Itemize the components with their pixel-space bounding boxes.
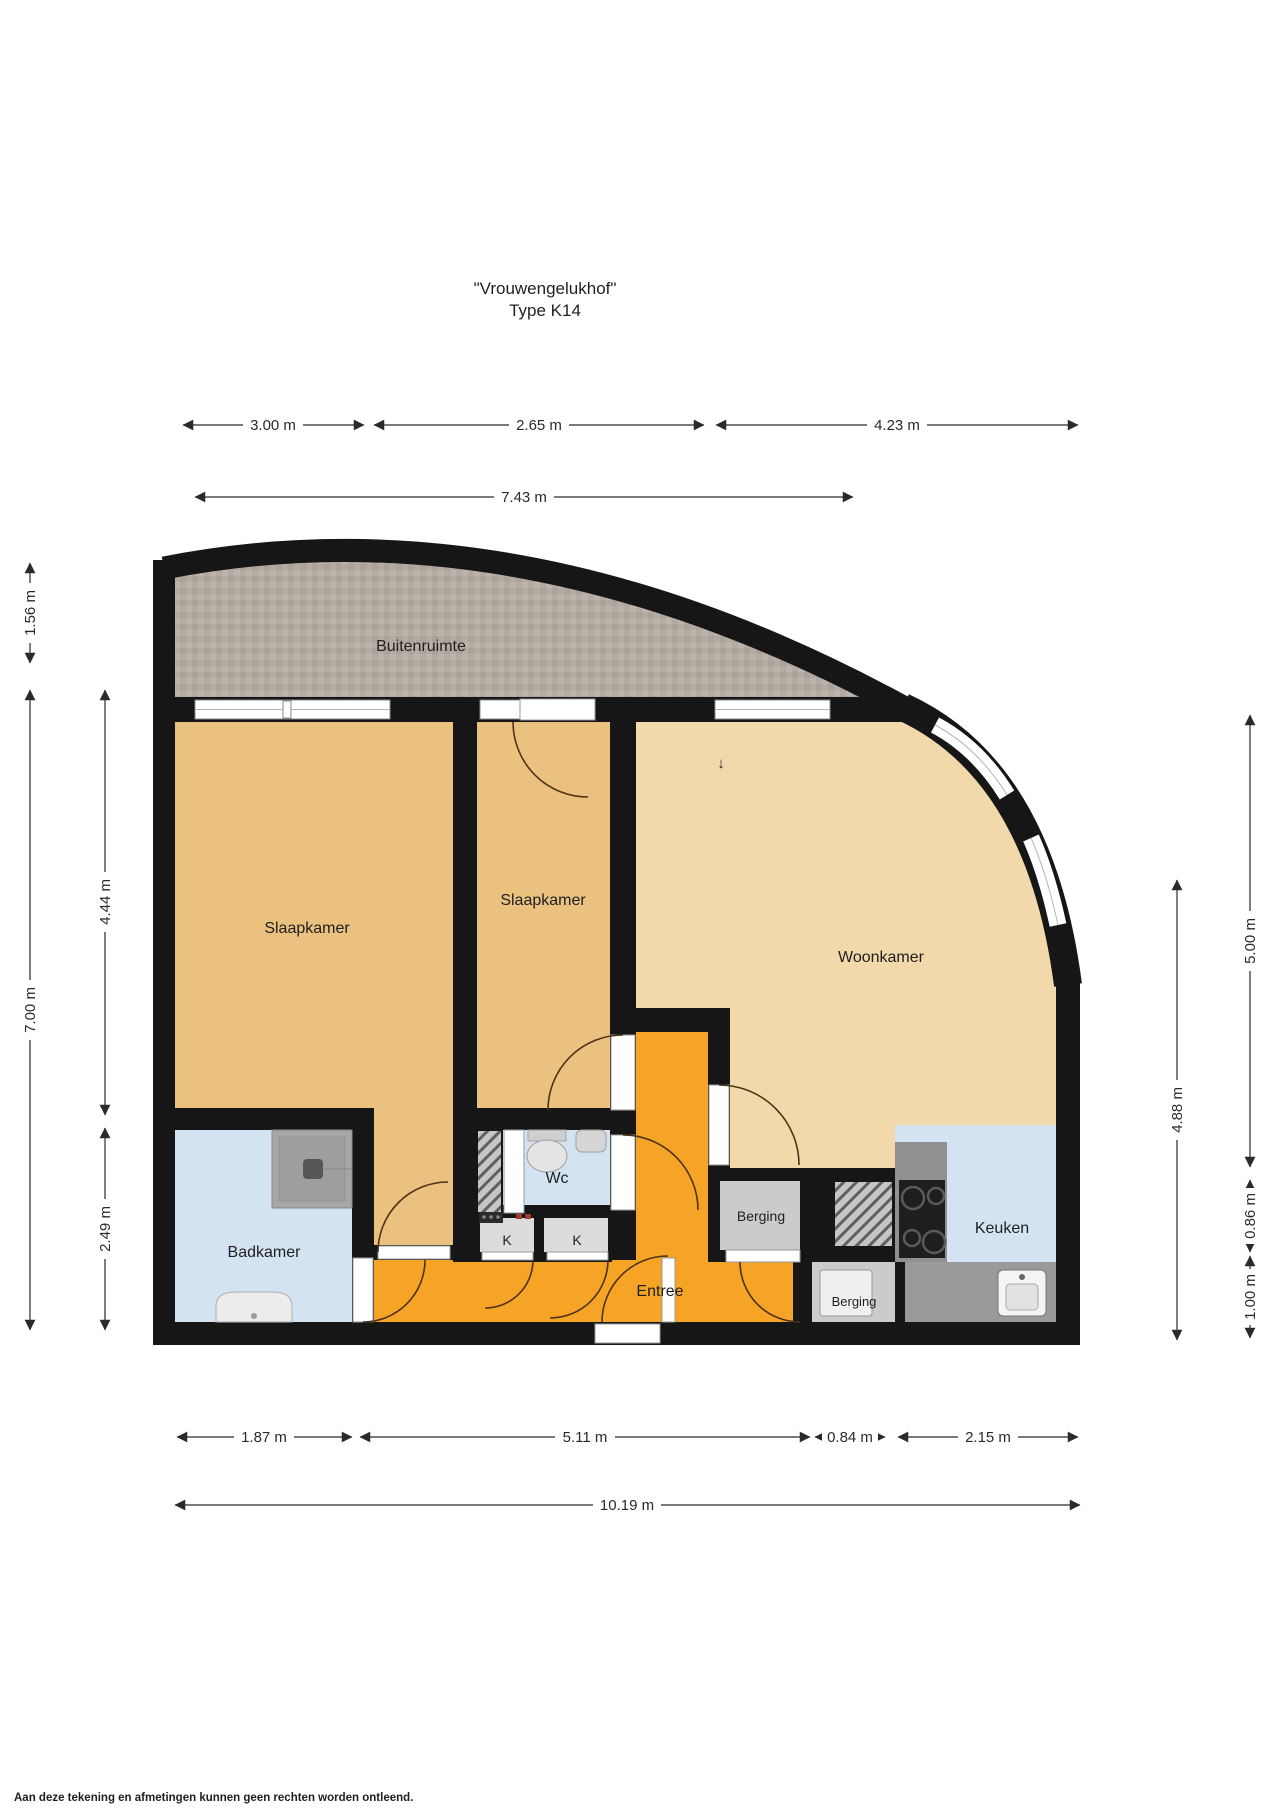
wall-hall-top <box>636 1008 730 1032</box>
door-opening <box>611 1135 635 1210</box>
disclaimer-text: Aan deze tekening en afmetingen kunnen g… <box>14 1792 413 1804</box>
toilet-icon <box>527 1140 567 1172</box>
window <box>480 700 520 719</box>
dim-label: 0.84 m <box>827 1429 873 1446</box>
dim-left-balcony: 1.56 m <box>21 563 39 663</box>
dim-label: 2.15 m <box>965 1429 1011 1446</box>
dim-label: 5.11 m <box>563 1429 608 1446</box>
kitchen-sink-basin <box>1006 1284 1038 1310</box>
appliance-dot <box>496 1215 500 1219</box>
dim-top-total: 7.43 m <box>195 488 853 506</box>
dim-label: 4.23 m <box>874 417 920 434</box>
floorplan-canvas: "Vrouwengelukhof" Type K14 <box>0 0 1280 1811</box>
shaft-panel <box>504 1130 524 1213</box>
dim-label: 2.49 m <box>97 1206 114 1252</box>
wall-bedrooms-divider <box>453 722 477 1260</box>
label-woonkamer: Woonkamer <box>838 949 925 966</box>
faucet-icon <box>1019 1274 1025 1280</box>
dim-bottom-total: 10.19 m <box>175 1496 1080 1514</box>
label-slaapkamer-midden: Slaapkamer <box>500 892 586 909</box>
label-kast-2: K <box>572 1232 582 1248</box>
dim-label: 7.00 m <box>22 987 39 1033</box>
dim-right-storage: 0.86 m <box>1241 1180 1259 1252</box>
wall-bedroom-living <box>610 722 636 1032</box>
dim-right-bottom: 1.00 m <box>1241 1256 1259 1338</box>
shower-drain-icon <box>303 1159 323 1179</box>
door-opening <box>378 1246 450 1259</box>
dim-left-bathroom: 2.49 m <box>96 1128 114 1330</box>
label-berging-1: Berging <box>737 1208 785 1224</box>
door-opening <box>709 1085 729 1165</box>
washer-icon <box>820 1270 872 1316</box>
wc-sink-icon <box>576 1130 606 1152</box>
label-buitenruimte: Buitenruimte <box>376 638 466 655</box>
label-berging-2: Berging <box>832 1294 877 1309</box>
toilet-tank-icon <box>528 1130 566 1141</box>
title-block: "Vrouwengelukhof" Type K14 <box>474 279 617 320</box>
window-mullion <box>283 701 291 718</box>
dim-left-bedroom: 4.44 m <box>96 690 114 1115</box>
label-badkamer: Badkamer <box>228 1244 302 1261</box>
dim-bottom-1: 1.87 m <box>177 1428 352 1446</box>
dim-label: 0.86 m <box>1242 1193 1259 1239</box>
bedroom-middle-floor <box>477 722 610 1113</box>
label-slaapkamer-links: Slaapkamer <box>264 920 350 937</box>
front-door-opening <box>595 1324 660 1343</box>
tap-symbol-icon <box>516 1214 522 1219</box>
shaft-hatch-1 <box>477 1130 502 1213</box>
wall-right <box>1056 975 1080 1345</box>
dim-label: 4.44 m <box>97 879 114 925</box>
dim-label: 10.19 m <box>600 1497 654 1514</box>
dim-bottom-3: 0.84 m <box>815 1428 885 1446</box>
label-wc: Wc <box>545 1170 568 1187</box>
dim-label: 1.56 m <box>22 590 39 636</box>
wall-bathroom-top <box>153 1108 374 1130</box>
door-opening <box>611 1035 635 1110</box>
appliance-dot <box>489 1215 493 1219</box>
dim-right-inner: 4.88 m <box>1168 880 1186 1340</box>
dim-label: 1.00 m <box>1242 1274 1259 1320</box>
dim-label: 7.43 m <box>501 489 547 506</box>
dim-label: 3.00 m <box>250 417 296 434</box>
closet-door <box>482 1252 533 1260</box>
dim-label: 5.00 m <box>1242 918 1259 964</box>
dim-label: 2.65 m <box>516 417 562 434</box>
wall-storage2-left <box>793 1262 812 1322</box>
dim-label: 1.87 m <box>241 1429 287 1446</box>
bathroom-sink-drain <box>251 1313 257 1319</box>
dim-right-living: 5.00 m <box>1241 715 1259 1167</box>
plan-title: "Vrouwengelukhof" <box>474 279 617 298</box>
dim-bottom-4: 2.15 m <box>898 1428 1078 1446</box>
appliance-dot <box>482 1215 486 1219</box>
dim-top-3: 4.23 m <box>716 416 1078 434</box>
dim-label: 4.88 m <box>1169 1087 1186 1133</box>
dim-top-2: 2.65 m <box>374 416 704 434</box>
label-kast-1: K <box>502 1232 512 1248</box>
shaft-hatch-2 <box>834 1181 893 1247</box>
dim-left-total: 7.00 m <box>21 690 39 1330</box>
entry-arrow-icon: ↓ <box>717 755 725 772</box>
door-opening <box>353 1258 373 1322</box>
door-opening <box>520 699 595 720</box>
floorplan-page: "Vrouwengelukhof" Type K14 <box>0 0 1280 1811</box>
wall-wc-top <box>477 1108 610 1130</box>
label-entree: Entree <box>636 1283 683 1300</box>
dim-bottom-2: 5.11 m <box>360 1428 810 1446</box>
dim-top-1: 3.00 m <box>183 416 364 434</box>
tap-symbol-icon <box>525 1214 531 1219</box>
wall-left <box>153 560 175 1345</box>
door-opening <box>726 1250 800 1262</box>
closet-door <box>547 1252 608 1260</box>
label-keuken: Keuken <box>975 1220 1029 1237</box>
plan-subtitle: Type K14 <box>509 301 581 320</box>
